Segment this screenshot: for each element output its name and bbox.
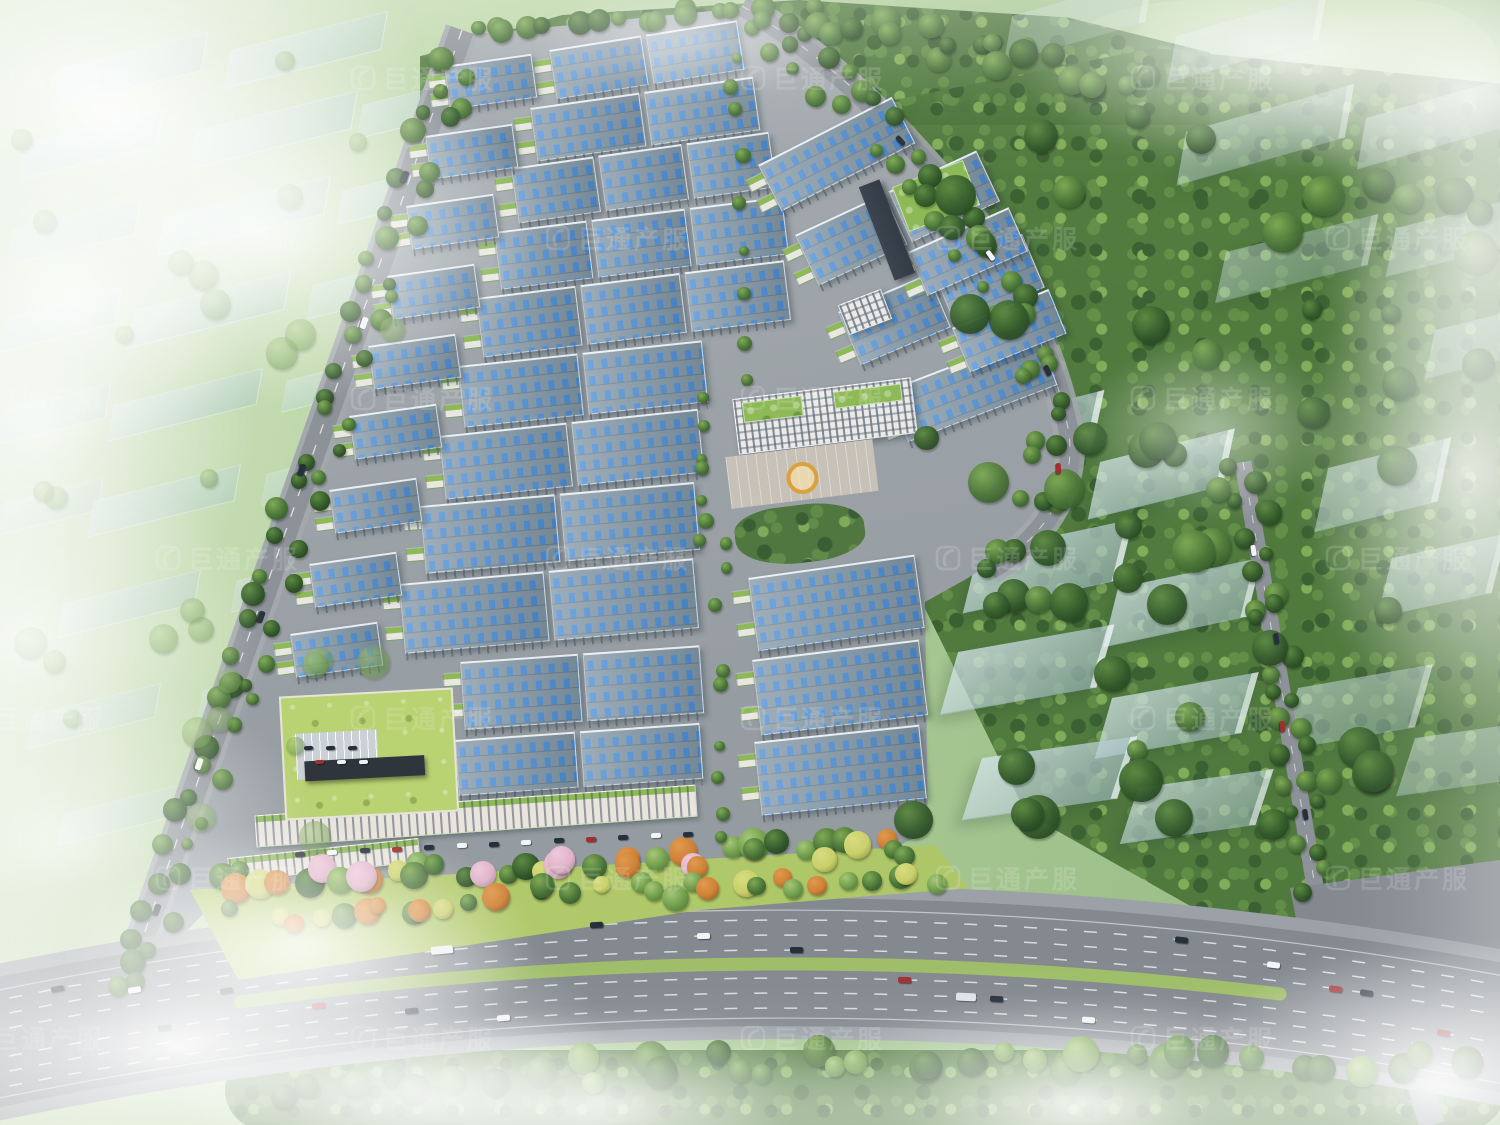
tree: [753, 11, 771, 29]
tree: [182, 717, 213, 748]
car: [404, 1008, 418, 1015]
tree: [299, 821, 331, 853]
service-block: [425, 474, 444, 490]
ghost-city-block: [107, 368, 263, 442]
ghost-city-block: [189, 90, 358, 169]
tree: [752, 1064, 772, 1084]
tree: [264, 870, 289, 895]
tree: [1394, 184, 1423, 213]
service-block: [735, 671, 755, 687]
tree: [356, 350, 373, 367]
tree: [258, 655, 275, 672]
tree: [779, 13, 799, 33]
tree: [914, 184, 936, 206]
tree: [1256, 500, 1282, 526]
tree: [115, 326, 133, 344]
office-green-roof: [833, 384, 903, 409]
tree: [911, 149, 926, 164]
tree: [1362, 168, 1395, 201]
highway-asphalt: [0, 962, 1500, 1046]
tree: [240, 679, 252, 691]
tree: [407, 216, 428, 237]
warehouse-building: [511, 156, 601, 223]
tree: [271, 1084, 297, 1110]
tree: [825, 1056, 846, 1077]
tree: [163, 798, 187, 822]
car: [489, 841, 499, 847]
service-block: [463, 334, 483, 350]
tree: [284, 914, 304, 934]
ghost-city-block: [7, 198, 142, 267]
tree: [342, 418, 356, 432]
tree: [697, 392, 708, 403]
tree: [805, 86, 826, 107]
car: [497, 1015, 510, 1022]
tree: [181, 838, 193, 850]
car: [554, 838, 564, 844]
tree: [1118, 76, 1136, 94]
tree: [1155, 799, 1193, 837]
car: [314, 760, 323, 764]
tree: [1252, 630, 1288, 666]
tree: [424, 854, 444, 874]
watermark: 巨通产服: [0, 1020, 105, 1056]
tree: [914, 426, 939, 451]
car: [424, 845, 434, 851]
warehouse-building: [592, 209, 692, 278]
watermark-logo-icon: [350, 1025, 376, 1051]
tree: [1192, 339, 1223, 370]
tree: [786, 62, 799, 75]
tree: [265, 497, 288, 520]
tree: [1125, 105, 1150, 130]
tree: [458, 69, 475, 86]
tree: [1138, 64, 1160, 86]
tree: [782, 36, 798, 52]
warehouse-building: [420, 494, 560, 574]
car: [586, 836, 596, 842]
tree: [266, 337, 299, 370]
watermark-text: 巨通产服: [968, 860, 1080, 896]
tree: [289, 540, 307, 558]
warehouse-building: [458, 353, 584, 427]
tree: [1244, 471, 1267, 494]
tree: [1115, 513, 1141, 539]
tree: [1239, 1045, 1263, 1069]
tree: [1353, 750, 1394, 791]
tree: [313, 909, 331, 927]
service-block: [444, 403, 463, 419]
tree: [646, 11, 666, 31]
service-block: [385, 626, 404, 642]
service-block: [517, 140, 537, 156]
tree: [983, 592, 1009, 618]
service-block: [736, 622, 756, 638]
car: [158, 1024, 172, 1032]
car: [392, 846, 402, 852]
tree: [1381, 304, 1401, 324]
tree: [1263, 212, 1303, 252]
tree: [982, 51, 1011, 80]
car: [1055, 462, 1061, 473]
car: [336, 760, 345, 764]
tree: [1030, 530, 1066, 566]
ghost-city-block: [224, 11, 388, 89]
tree: [180, 598, 205, 623]
warehouse-building: [571, 409, 704, 486]
tree: [1303, 176, 1343, 216]
tree: [844, 831, 872, 859]
warehouse-building: [399, 571, 550, 653]
tree: [588, 9, 610, 31]
tree: [989, 300, 1029, 340]
tree: [285, 574, 303, 592]
lawn-block: [279, 688, 459, 821]
tree: [739, 246, 749, 256]
tree: [416, 180, 434, 198]
tree: [968, 462, 1009, 503]
tree: [983, 34, 1001, 52]
tree: [1346, 1056, 1377, 1087]
tree: [1051, 407, 1066, 422]
service-block: [276, 660, 296, 676]
tree: [375, 226, 399, 250]
tree: [842, 64, 858, 80]
tree: [1139, 422, 1177, 460]
tree: [818, 47, 840, 69]
car: [220, 987, 234, 995]
tree: [939, 37, 956, 54]
tree: [674, 4, 696, 26]
tree: [400, 118, 425, 143]
service-block: [480, 267, 500, 283]
tree: [1248, 609, 1263, 624]
tree: [168, 250, 194, 276]
car: [431, 945, 454, 955]
warehouse-row: [754, 725, 927, 816]
car: [1174, 936, 1188, 943]
service-block: [408, 143, 428, 159]
tree: [720, 537, 733, 550]
tree: [582, 1072, 604, 1094]
tree: [1009, 39, 1038, 68]
tree: [294, 1074, 319, 1099]
service-block: [273, 641, 293, 657]
tree: [957, 1048, 986, 1077]
tree: [1050, 583, 1088, 621]
tree: [169, 863, 191, 885]
warehouse-building: [460, 654, 582, 730]
tree: [380, 317, 405, 342]
warehouse-building: [439, 423, 572, 500]
tree: [14, 627, 47, 660]
tree: [239, 609, 257, 627]
tree: [317, 400, 332, 415]
tree: [568, 1042, 600, 1074]
tree: [885, 107, 904, 126]
warehouse-building: [582, 645, 704, 721]
service-block: [732, 589, 752, 605]
tree: [708, 598, 722, 612]
tree: [1015, 368, 1031, 384]
tree: [611, 11, 626, 26]
tree: [349, 133, 368, 152]
warehouse-building: [582, 340, 708, 414]
tree: [1025, 586, 1052, 613]
car: [589, 921, 602, 928]
service-block: [536, 80, 556, 97]
tree: [1127, 740, 1147, 760]
warehouse-building: [548, 558, 699, 640]
tree: [878, 22, 901, 45]
watermark-text: 巨通产服: [0, 1020, 105, 1056]
car: [1436, 1029, 1450, 1037]
tree: [526, 1056, 557, 1087]
tree: [1024, 119, 1058, 153]
tree: [1186, 124, 1216, 154]
tree: [1382, 367, 1416, 401]
tree: [200, 469, 218, 487]
tree: [764, 829, 789, 854]
tree: [977, 559, 996, 578]
car: [303, 746, 312, 750]
tree: [729, 1059, 752, 1082]
car: [521, 840, 531, 846]
tree: [1011, 798, 1043, 830]
service-block: [532, 58, 552, 75]
service-block: [513, 116, 533, 132]
car: [127, 986, 141, 994]
fountain-circle: [785, 460, 821, 496]
tree: [342, 1071, 370, 1099]
tree: [706, 1040, 731, 1065]
tree: [1197, 1035, 1229, 1067]
tree: [1164, 1035, 1195, 1066]
tree: [1374, 597, 1401, 624]
car: [1359, 989, 1373, 997]
tree: [1053, 176, 1085, 208]
tree: [471, 21, 485, 35]
ghost-city-block: [0, 383, 111, 444]
warehouse-building: [580, 273, 687, 345]
tree: [741, 374, 753, 386]
service-block: [740, 706, 760, 722]
service-block: [741, 786, 760, 802]
warehouse-building: [754, 725, 927, 816]
highway-sidewalk: [0, 962, 1500, 1046]
tree: [948, 249, 961, 262]
warehouse-building: [580, 723, 704, 787]
service-block: [315, 516, 335, 532]
ghost-city-block: [27, 683, 161, 749]
tree: [266, 527, 283, 544]
car: [312, 1003, 326, 1011]
car: [358, 760, 367, 764]
highway-median: [240, 964, 1280, 1002]
tree: [812, 847, 836, 871]
tree: [1407, 1041, 1433, 1067]
tree: [723, 79, 738, 94]
tree: [1296, 771, 1317, 792]
tree: [200, 289, 231, 320]
car: [618, 835, 628, 841]
tree: [1023, 1048, 1047, 1072]
tree: [1462, 348, 1495, 381]
tree: [894, 801, 933, 840]
tree: [839, 872, 857, 890]
car: [325, 746, 334, 750]
tree: [548, 846, 576, 874]
tree: [716, 807, 730, 821]
car: [327, 850, 337, 856]
ghost-city-block: [0, 289, 121, 353]
tree: [1298, 736, 1316, 754]
car: [360, 848, 370, 854]
car: [1267, 962, 1281, 970]
tree: [735, 148, 751, 164]
warehouse-building: [598, 144, 688, 211]
tree: [428, 47, 454, 73]
tree: [1377, 446, 1417, 486]
service-block: [406, 547, 425, 563]
tree: [310, 491, 331, 512]
tree: [1172, 530, 1215, 573]
car: [295, 851, 305, 857]
tree: [862, 871, 881, 890]
tree: [1127, 1044, 1147, 1064]
tree: [357, 646, 390, 679]
tree: [149, 624, 178, 653]
tree: [1316, 768, 1341, 793]
office-green-roof: [742, 396, 804, 423]
ghost-city-block: [54, 32, 208, 108]
tree: [398, 1074, 430, 1106]
tree: [1073, 422, 1107, 456]
tree: [1310, 794, 1325, 809]
tree: [530, 873, 555, 898]
tree: [644, 1056, 678, 1090]
car: [1082, 1016, 1095, 1023]
car: [347, 746, 356, 750]
tree: [441, 107, 461, 127]
service-block: [498, 202, 518, 218]
watermark-logo-icon: [155, 545, 181, 571]
tree: [870, 144, 882, 156]
tree: [1258, 809, 1289, 840]
service-block: [494, 176, 514, 192]
car: [955, 993, 975, 1002]
car: [1328, 985, 1342, 993]
tree: [1268, 707, 1290, 729]
tree: [1297, 397, 1330, 430]
tree: [927, 874, 947, 894]
tree: [33, 481, 54, 502]
car: [697, 933, 710, 939]
ghost-city-block: [57, 570, 201, 639]
tree: [340, 301, 361, 322]
car: [651, 833, 661, 839]
tree: [419, 162, 439, 182]
tree: [263, 620, 280, 637]
tree: [994, 1042, 1014, 1062]
tree: [743, 838, 765, 860]
tree: [325, 363, 342, 380]
rendering-canvas: 巨通产服巨通产服巨通产服巨通产服巨通产服巨通产服巨通产服巨通产服巨通产服巨通产服…: [0, 0, 1500, 1125]
service-block: [295, 590, 315, 606]
tree: [358, 251, 374, 267]
warehouse-building: [559, 482, 699, 562]
tree: [355, 275, 373, 293]
tree: [490, 19, 513, 42]
tree: [939, 215, 964, 240]
service-block: [737, 753, 756, 769]
tree: [1467, 199, 1494, 226]
tree: [711, 771, 724, 784]
ghost-city-block: [157, 176, 331, 256]
warehouse-building: [455, 732, 579, 796]
car: [683, 831, 693, 837]
tree: [747, 877, 765, 895]
service-block: [354, 372, 374, 388]
tree: [1044, 469, 1084, 509]
tree: [1288, 835, 1306, 853]
tree: [1063, 1036, 1099, 1072]
service-block: [443, 672, 462, 687]
tree: [732, 196, 746, 210]
tree: [275, 51, 295, 71]
tree: [286, 737, 304, 755]
tree: [1147, 584, 1188, 625]
tree: [63, 710, 82, 729]
car: [457, 843, 467, 849]
tree: [913, 1051, 941, 1079]
warehouse-building: [494, 221, 594, 290]
tree: [696, 495, 707, 506]
car: [990, 995, 1003, 1002]
tree: [1046, 435, 1067, 456]
tree: [43, 650, 66, 673]
tree: [333, 444, 346, 457]
tree: [950, 294, 990, 334]
tree: [482, 883, 510, 911]
car: [897, 977, 910, 983]
tree: [696, 877, 719, 900]
warehouse-building: [476, 286, 583, 358]
tree: [1219, 458, 1237, 476]
tree: [416, 105, 431, 120]
car: [50, 985, 64, 993]
tree: [311, 470, 326, 485]
tree: [1454, 231, 1498, 275]
tree: [1265, 594, 1283, 612]
tree: [385, 290, 398, 303]
tree: [760, 43, 779, 62]
tree: [152, 834, 173, 855]
tree: [715, 831, 727, 843]
tree: [783, 879, 803, 899]
tree: [865, 91, 880, 106]
watermark-logo-icon: [350, 65, 376, 91]
tree: [721, 562, 733, 574]
tree: [222, 647, 239, 664]
tree: [1079, 72, 1105, 98]
tree: [139, 942, 156, 959]
tree: [408, 899, 431, 922]
tree: [163, 912, 184, 933]
tree: [1119, 759, 1162, 802]
ghost-city-block: [19, 109, 163, 180]
tree: [1132, 306, 1170, 344]
